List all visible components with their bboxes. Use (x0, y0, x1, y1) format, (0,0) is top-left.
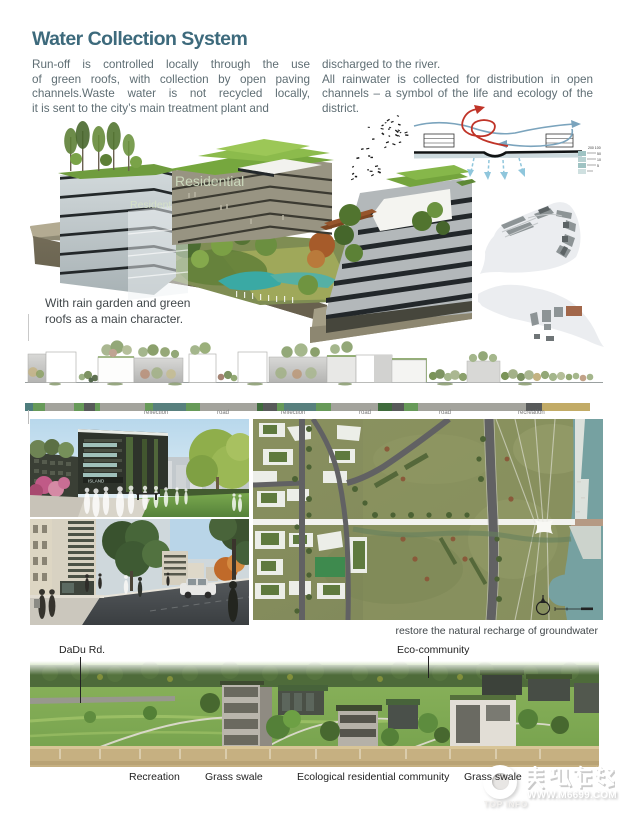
svg-text:200 100: 200 100 (588, 146, 601, 150)
svg-text:ISLAND: ISLAND (88, 479, 105, 484)
svg-text:5: 5 (597, 164, 599, 168)
svg-text:10: 10 (597, 158, 601, 162)
svg-text:Residential: Residential (175, 173, 244, 189)
svg-text:50: 50 (597, 152, 601, 156)
